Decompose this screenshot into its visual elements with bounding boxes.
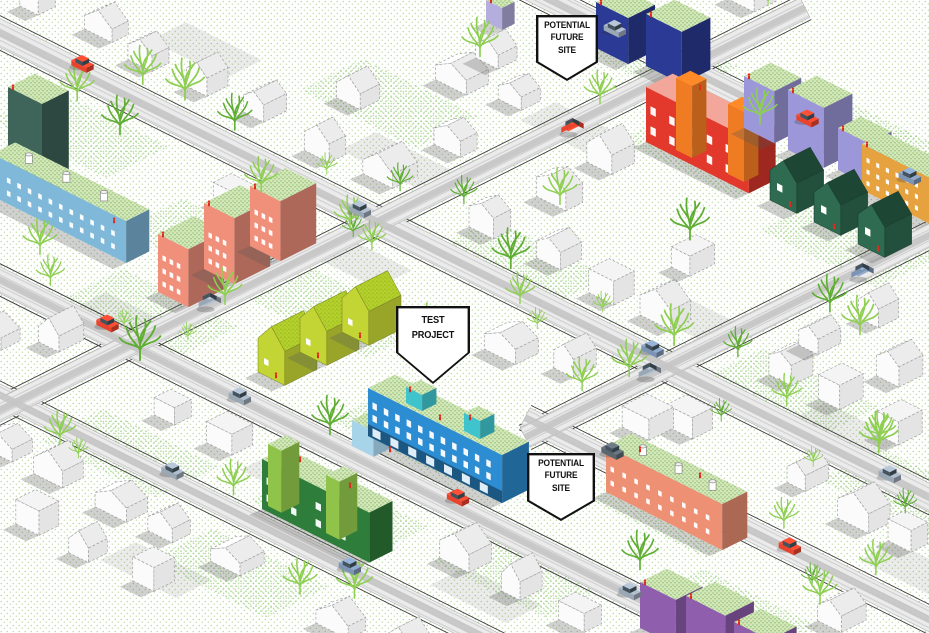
callout-line: FUTURE xyxy=(531,470,591,482)
callout-line: PROJECT xyxy=(400,328,465,343)
callout-potential-future-site-south: POTENTIAL FUTURE SITE xyxy=(527,453,595,521)
callout-line: SITE xyxy=(540,45,595,57)
callout-test-project: TEST PROJECT xyxy=(396,306,470,384)
site-plan-canvas: POTENTIAL FUTURE SITE TEST PROJECT POTEN… xyxy=(0,0,929,633)
callout-line: TEST xyxy=(400,313,465,328)
callout-line: SITE xyxy=(531,483,591,495)
callout-potential-future-site-north: POTENTIAL FUTURE SITE xyxy=(536,15,598,81)
callout-line: FUTURE xyxy=(540,32,595,44)
callout-line: POTENTIAL xyxy=(540,20,595,32)
callout-line: POTENTIAL xyxy=(531,458,591,470)
